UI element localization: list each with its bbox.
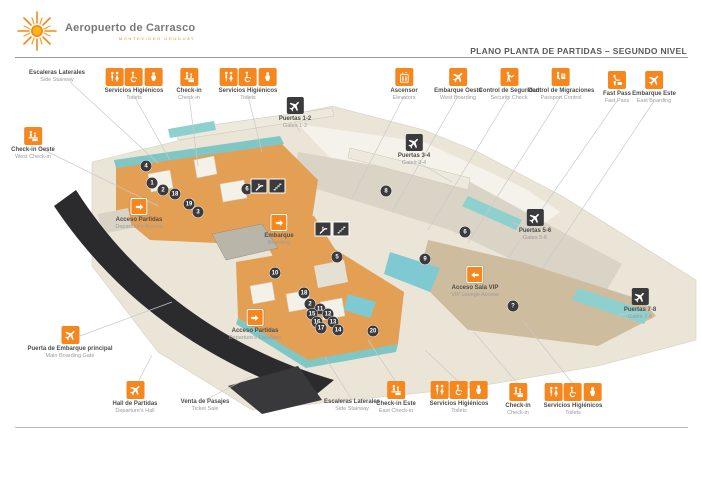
- escaleras-laterales-oeste: Escaleras LateralesSide Stairway: [29, 70, 85, 84]
- embarque-este-label-en: East Boarding: [632, 98, 676, 105]
- wheelchair-icon: [239, 68, 257, 86]
- servicios-higienicos-norte-label-es: Servicios Higiénicos: [219, 88, 278, 95]
- escaleras-laterales-este: Escaleras LateralesSide Stairway: [324, 399, 380, 413]
- servicios-higienicos-sureste-1-label-es: Servicios Higiénicos: [430, 401, 489, 408]
- fast-pass-label-es: Fast Pass: [603, 91, 631, 98]
- puertas-7-8-label-en: Gates 7-8: [624, 314, 656, 321]
- hall-de-partidas: Hall de PartidasDeparture's Hall: [112, 381, 157, 415]
- control-de-migraciones-label-en: Passport Control: [528, 95, 595, 102]
- acceso-partidas-sur-label-en: Departure's Escalator: [229, 335, 282, 342]
- acceso-partidas-oeste-label-en: Departure's Access: [115, 224, 162, 231]
- puertas-7-8: Puertas 7-8Gates 7-8: [624, 288, 656, 321]
- fast-pass-label-en: Fast Pass: [603, 98, 631, 105]
- escalator-icon: [251, 179, 268, 194]
- ascensor-label-en: Elevators: [390, 95, 417, 102]
- hall-de-partidas-label-es: Hall de Partidas: [112, 401, 157, 408]
- puerta-embarque-principal-label-en: Main Boarding Gate: [27, 353, 112, 360]
- plane-icon: [61, 326, 79, 344]
- check-in-norte-label-es: Check-in: [176, 88, 201, 95]
- map-marker-14: 14: [333, 325, 344, 336]
- stairs-icon: [269, 179, 286, 194]
- control-de-migraciones-label-es: Control de Migraciones: [528, 88, 595, 95]
- security-icon: [500, 68, 518, 86]
- restroom-icon: [430, 381, 448, 399]
- puertas-7-8-label-es: Puertas 7-8: [624, 307, 656, 314]
- embarque-oeste: Embarque OesteWest Boarding: [434, 68, 482, 102]
- map-marker-?: ?: [508, 301, 519, 312]
- hall-de-partidas-label-en: Departure's Hall: [112, 408, 157, 415]
- map-marker-4: 4: [141, 161, 152, 172]
- baby-icon: [469, 381, 487, 399]
- baby-icon: [258, 68, 276, 86]
- puertas-3-4-label-es: Puertas 3-4: [398, 153, 430, 160]
- restroom-icon: [219, 68, 237, 86]
- control-de-migraciones: Control de MigracionesPassport Control: [528, 68, 595, 102]
- check-in-norte: Check-inCheck-in: [176, 68, 201, 102]
- map-marker-1: 1: [147, 178, 158, 189]
- check-in-oeste-label-es: Check-in Oeste: [11, 147, 55, 154]
- wheelchair-icon: [564, 383, 582, 401]
- check-in-sur-label-es: Check-in: [505, 403, 530, 410]
- check-in-oeste-label-en: West Check-in: [11, 154, 55, 161]
- plane-icon: [449, 68, 467, 86]
- sun-logo-icon: [16, 10, 58, 52]
- checkin-icon: [509, 383, 527, 401]
- check-in-sur: Check-inCheck-in: [505, 383, 530, 417]
- plane-icon: [405, 134, 422, 151]
- ascensor-label-es: Ascensor: [390, 88, 417, 95]
- servicios-higienicos-norte-label-en: Toilets: [219, 95, 278, 102]
- embarque-centro-label-es: Embarque: [264, 233, 293, 240]
- baby-icon: [583, 383, 601, 401]
- baby-icon: [144, 68, 162, 86]
- plane-icon: [526, 209, 543, 226]
- airport-map-page: Aeropuerto de Carrasco MONTEVIDEO URUGUA…: [0, 0, 702, 484]
- acceso-sala-vip-label-en: VIP Lounge Access: [451, 292, 499, 299]
- venta-de-pasajes-label-en: Ticket Sale: [181, 406, 230, 413]
- embarque-centro: EmbarqueBoarding: [264, 214, 293, 247]
- airport-logo: Aeropuerto de Carrasco MONTEVIDEO URUGUA…: [16, 10, 195, 52]
- map-marker-2: 2: [158, 185, 169, 196]
- embarque-este-label-es: Embarque Este: [632, 91, 676, 98]
- logo-subtitle: MONTEVIDEO URUGUAY: [65, 36, 195, 41]
- checkin-icon: [180, 68, 198, 86]
- logo-title: Aeropuerto de Carrasco: [65, 22, 195, 34]
- acceso-partidas-oeste-label-es: Acceso Partidas: [115, 217, 162, 224]
- map-marker-8: 8: [381, 186, 392, 197]
- servicios-higienicos-sureste-1: Servicios HigiénicosToilets: [430, 381, 489, 415]
- puertas-1-2: Puertas 1-2Gates 1-2: [279, 97, 311, 130]
- passport-icon: [552, 68, 570, 86]
- puerta-embarque-principal-label-es: Puerta de Embarque principal: [27, 346, 112, 353]
- escalator-icon: [315, 222, 332, 237]
- fastpass-icon: [608, 71, 626, 89]
- wheelchair-icon: [450, 381, 468, 399]
- map-marker-5: 5: [332, 252, 343, 263]
- puertas-1-2-label-es: Puertas 1-2: [279, 116, 311, 123]
- servicios-higienicos-norte: Servicios HigiénicosToilets: [219, 68, 278, 102]
- puertas-5-6-label-en: Gates 5-6: [519, 235, 551, 242]
- servicios-higienicos-sureste-2-label-en: Toilets: [544, 410, 603, 417]
- header-divider: [15, 57, 688, 58]
- escaleras-laterales-oeste-label-es: Escaleras Laterales: [29, 70, 85, 77]
- venta-de-pasajes-label-es: Venta de Pasajes: [181, 399, 230, 406]
- acceso-partidas-sur: Acceso PartidasDeparture's Escalator: [229, 309, 282, 342]
- map-marker-10: 10: [270, 268, 281, 279]
- check-in-norte-label-en: Check-in: [176, 95, 201, 102]
- servicios-higienicos-noroeste-label-en: Toilets: [105, 95, 164, 102]
- puertas-5-6-label-es: Puertas 5-6: [519, 228, 551, 235]
- servicios-higienicos-noroeste: Servicios HigiénicosToilets: [105, 68, 164, 102]
- fast-pass: Fast PassFast Pass: [603, 71, 631, 105]
- check-in-oeste: Check-in OesteWest Check-in: [11, 127, 55, 161]
- checkin-icon: [387, 381, 405, 399]
- map-marker-17: 17: [316, 323, 327, 334]
- arrow-right-icon: [247, 309, 264, 326]
- page-title: PLANO PLANTA DE PARTIDAS – SEGUNDO NIVEL: [470, 46, 687, 56]
- escaleras-laterales-oeste-label-en: Side Stairway: [29, 77, 85, 84]
- check-in-sur-label-en: Check-in: [505, 410, 530, 417]
- check-in-este: Check-in EsteEast Check-in: [376, 381, 416, 415]
- puertas-1-2-label-en: Gates 1-2: [279, 123, 311, 130]
- map-marker-20: 20: [368, 326, 379, 337]
- servicios-higienicos-noroeste-label-es: Servicios Higiénicos: [105, 88, 164, 95]
- elevator-icon: [395, 68, 413, 86]
- map-marker-9: 9: [420, 254, 431, 265]
- embarque-oeste-label-es: Embarque Oeste: [434, 88, 482, 95]
- plane-icon: [645, 71, 663, 89]
- map-marker-6: 6: [460, 227, 471, 238]
- acceso-sala-vip: Acceso Sala VIPVIP Lounge Access: [451, 266, 499, 299]
- checkin-icon: [24, 127, 42, 145]
- map-marker-3: 3: [193, 207, 204, 218]
- arrow-left-icon: [466, 266, 483, 283]
- stairs-icon: [333, 222, 350, 237]
- servicios-higienicos-sureste-2-label-es: Servicios Higiénicos: [544, 403, 603, 410]
- embarque-centro-label-en: Boarding: [264, 240, 293, 247]
- arrow-right-icon: [131, 198, 148, 215]
- puertas-5-6: Puertas 5-6Gates 5-6: [519, 209, 551, 242]
- acceso-partidas-sur-label-es: Acceso Partidas: [229, 328, 282, 335]
- servicios-higienicos-sureste-1-label-en: Toilets: [430, 408, 489, 415]
- escaleras-laterales-este-label-es: Escaleras Laterales: [324, 399, 380, 406]
- check-in-este-label-en: East Check-in: [376, 408, 416, 415]
- puertas-3-4-label-en: Gates 3-4: [398, 160, 430, 167]
- plane-icon: [286, 97, 303, 114]
- check-in-este-label-es: Check-in Este: [376, 401, 416, 408]
- map-marker-18: 18: [299, 288, 310, 299]
- venta-de-pasajes: Venta de PasajesTicket Sale: [181, 399, 230, 413]
- embarque-oeste-label-en: West Boarding: [434, 95, 482, 102]
- restroom-icon: [544, 383, 562, 401]
- ascensor: AscensorElevators: [390, 68, 417, 102]
- servicios-higienicos-sureste-2: Servicios HigiénicosToilets: [544, 383, 603, 417]
- escaleras-laterales-este-label-en: Side Stairway: [324, 406, 380, 413]
- map-marker-18: 18: [170, 189, 181, 200]
- arrow-right-icon: [271, 214, 288, 231]
- embarque-este: Embarque EsteEast Boarding: [632, 71, 676, 105]
- restroom-icon: [105, 68, 123, 86]
- acceso-sala-vip-label-es: Acceso Sala VIP: [451, 285, 499, 292]
- acceso-partidas-oeste: Acceso PartidasDeparture's Access: [115, 198, 162, 231]
- puerta-embarque-principal: Puerta de Embarque principalMain Boardin…: [27, 326, 112, 360]
- plane-icon: [126, 381, 144, 399]
- plane-icon: [631, 288, 648, 305]
- wheelchair-icon: [125, 68, 143, 86]
- puertas-3-4: Puertas 3-4Gates 3-4: [398, 134, 430, 167]
- footer-divider: [15, 427, 688, 428]
